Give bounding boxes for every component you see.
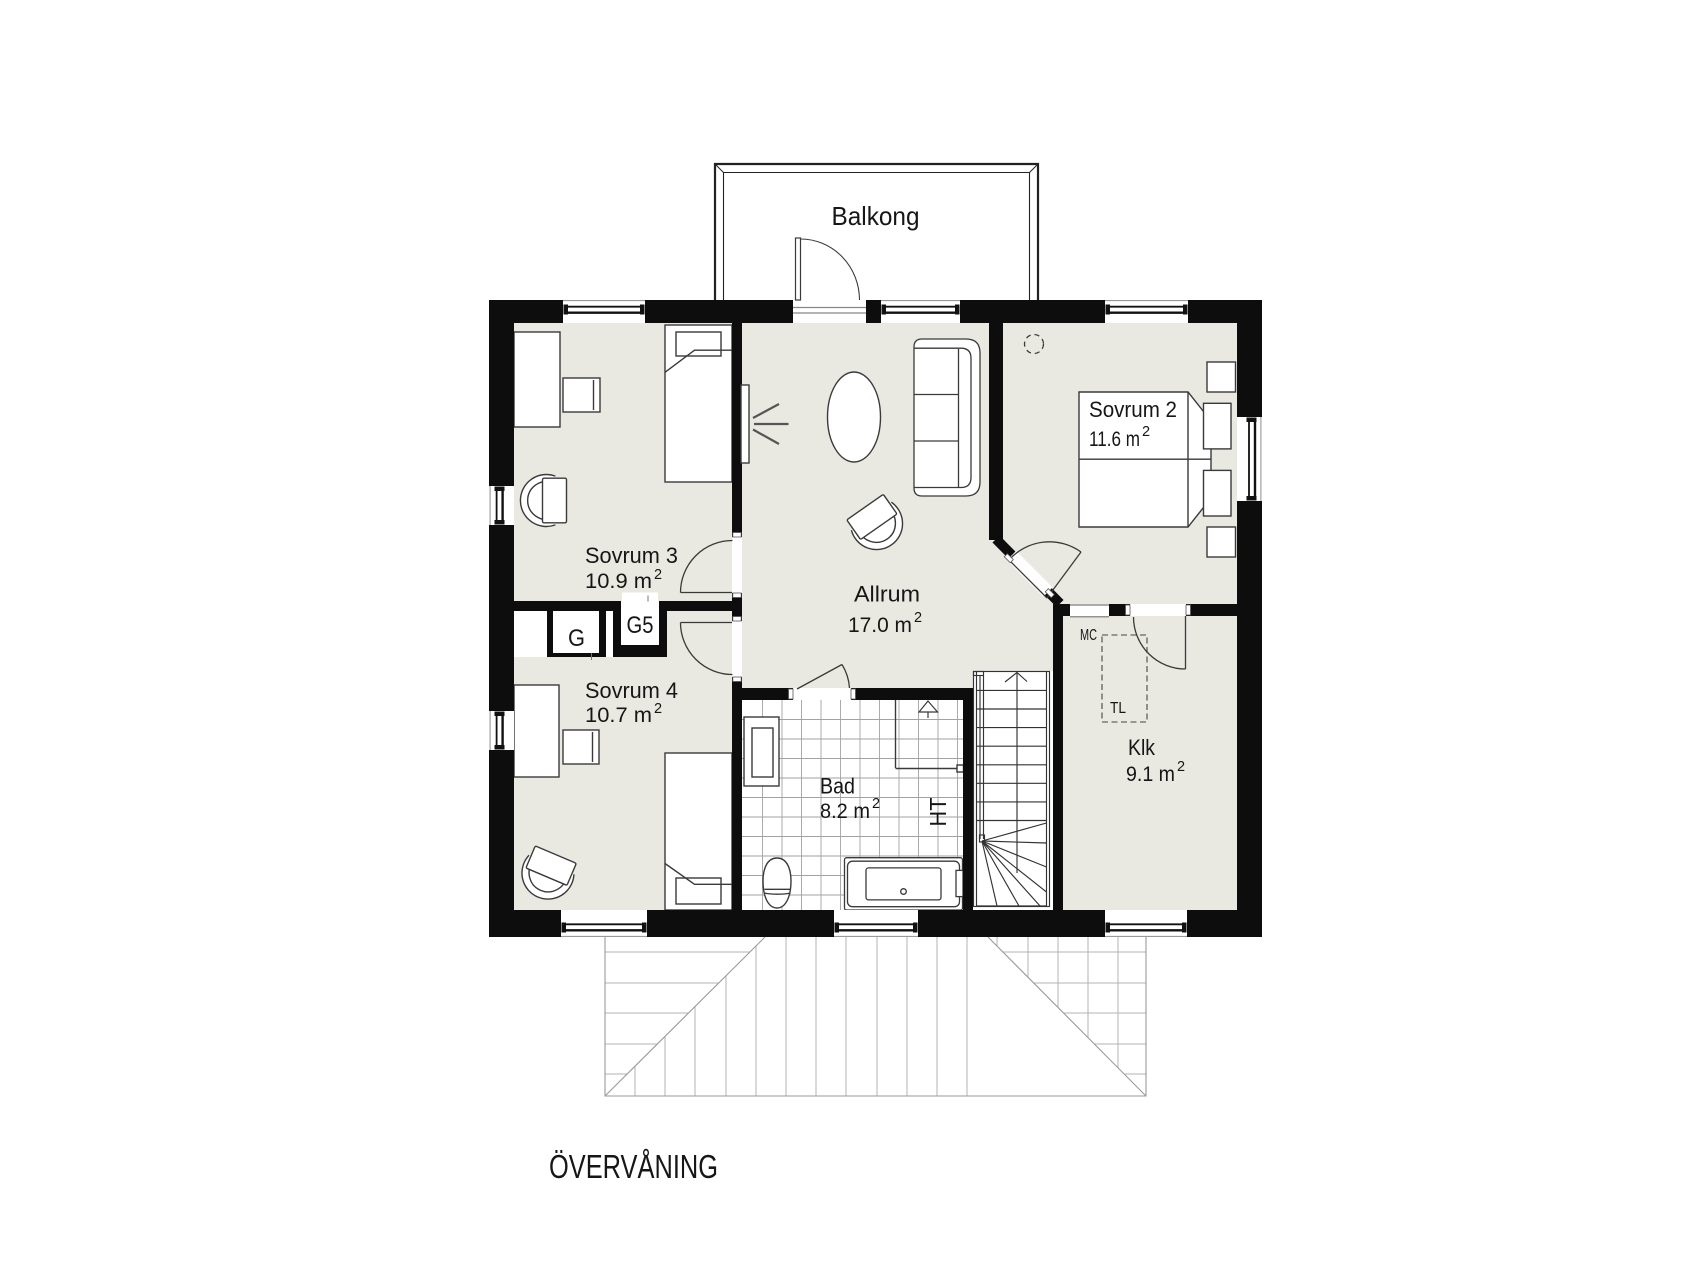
svg-text:2: 2 — [914, 610, 922, 626]
svg-text:HT: HT — [925, 798, 951, 827]
svg-text:G: G — [568, 625, 585, 652]
svg-text:Bad: Bad — [820, 774, 855, 799]
svg-text:MC: MC — [1080, 627, 1097, 644]
svg-text:10.9 m: 10.9 m — [585, 569, 652, 593]
svg-text:2: 2 — [654, 567, 662, 583]
svg-text:8.2 m: 8.2 m — [820, 799, 870, 823]
svg-text:Sovrum 4: Sovrum 4 — [585, 678, 678, 703]
svg-text:17.0 m: 17.0 m — [848, 613, 912, 637]
svg-text:Sovrum 2: Sovrum 2 — [1089, 397, 1177, 422]
svg-text:Sovrum 3: Sovrum 3 — [585, 543, 678, 568]
svg-text:Balkong: Balkong — [832, 201, 920, 231]
svg-text:2: 2 — [654, 701, 662, 717]
svg-text:ÖVERVÅNING: ÖVERVÅNING — [549, 1148, 718, 1185]
svg-text:2: 2 — [1177, 759, 1185, 775]
svg-text:11.6 m: 11.6 m — [1089, 427, 1140, 451]
svg-text:9.1 m: 9.1 m — [1126, 762, 1175, 786]
svg-text:10.7 m: 10.7 m — [585, 703, 652, 727]
svg-text:2: 2 — [1142, 424, 1150, 440]
svg-text:Klk: Klk — [1128, 735, 1156, 760]
svg-text:Allrum: Allrum — [854, 582, 920, 607]
svg-text:TL: TL — [1110, 700, 1126, 717]
svg-text:G5: G5 — [627, 612, 654, 639]
svg-text:2: 2 — [872, 796, 880, 812]
